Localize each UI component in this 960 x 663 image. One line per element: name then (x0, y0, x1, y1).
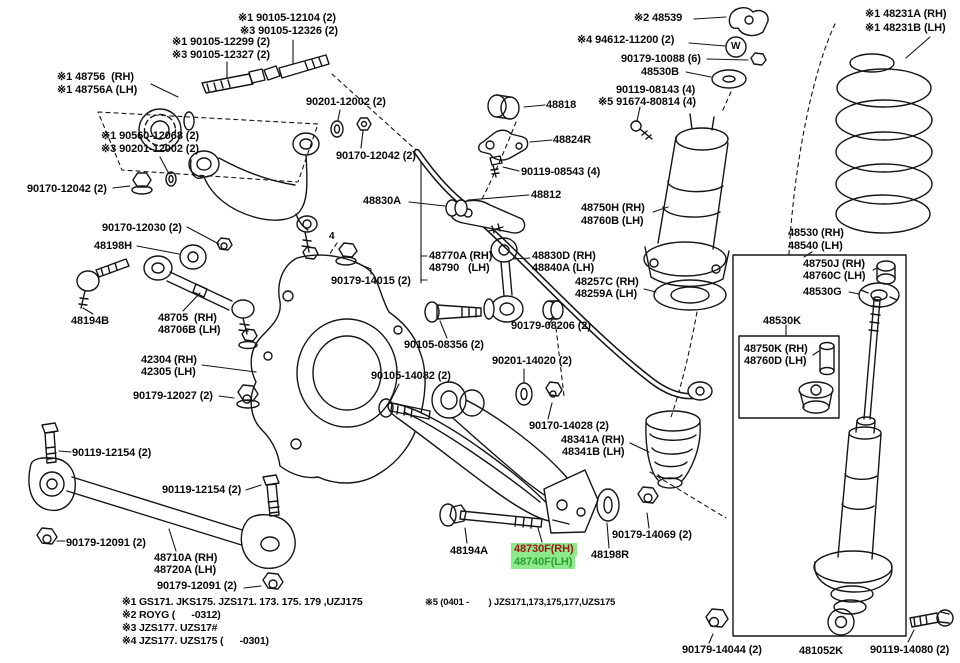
label-90201-12002-top[interactable]: 90201-12002 (2) (306, 96, 386, 108)
label-48720a-lh[interactable]: 48720A (LH) (154, 564, 216, 576)
label-48705-rh[interactable]: 48705 (RH) (158, 312, 217, 324)
label-48812[interactable]: 48812 (531, 189, 561, 201)
stabilizer-bushing-bracket-48818-48824r (479, 95, 552, 177)
note-4: ※4 JZS177. UZS175 ( -0301) (122, 636, 269, 648)
label-94612-11200[interactable]: ※4 94612-11200 (2) (577, 34, 674, 46)
note-2: ※2 ROYG ( -0312) (122, 610, 221, 622)
label-48756a-lh[interactable]: ※1 48756A (LH) (57, 84, 137, 96)
mark-w: W (731, 41, 740, 52)
tie-rod-end-48194b (77, 259, 129, 314)
label-48830a[interactable]: 48830A (363, 195, 401, 207)
label-42305-lh[interactable]: 42305 (LH) (141, 366, 196, 378)
label-48760c-lh[interactable]: 48760C (LH) (803, 270, 865, 282)
label-90201-12002-left[interactable]: ※3 90201-12002 (2) (101, 143, 199, 155)
label-48198r[interactable]: 48198R (591, 549, 629, 561)
strut-assembly-48750h (644, 114, 729, 310)
label-90105-12104[interactable]: ※1 90105-12104 (2) (238, 12, 336, 24)
label-90560-12068[interactable]: ※1 90560-12068 (2) (101, 130, 199, 142)
label-48756-rh[interactable]: ※1 48756 (RH) (57, 71, 134, 83)
label-48194a[interactable]: 48194A (450, 545, 488, 557)
label-48750j-rh[interactable]: 48750J (RH) (803, 258, 865, 270)
label-90179-12091-b[interactable]: 90179-12091 (2) (157, 580, 237, 592)
label-48341b-lh[interactable]: 48341B (LH) (562, 446, 624, 458)
mark-4: 4 (329, 231, 334, 242)
label-90179-10088[interactable]: 90179-10088 (6) (621, 53, 701, 65)
label-42304-rh[interactable]: 42304 (RH) (141, 354, 197, 366)
label-48198h[interactable]: 48198H (94, 240, 132, 252)
label-48770a-rh[interactable]: 48770A (RH) (429, 250, 492, 262)
label-90119-12154-a[interactable]: 90119-12154 (2) (72, 447, 151, 459)
label-90179-12027[interactable]: 90179-12027 (2) (133, 390, 213, 402)
coil-spring-48231 (836, 37, 932, 233)
label-90119-12154-b[interactable]: 90119-12154 (2) (162, 484, 241, 496)
label-48750k-rh[interactable]: 48750K (RH) (744, 343, 808, 355)
label-48530g[interactable]: 48530G (803, 286, 842, 298)
label-90179-14069[interactable]: 90179-14069 (2) (612, 529, 692, 541)
label-48830d-rh[interactable]: 48830D (RH) (532, 250, 596, 262)
label-48259a-lh[interactable]: 48259A (LH) (575, 288, 637, 300)
label-90170-12042-center[interactable]: 90170-12042 (2) (336, 150, 416, 162)
shock-kit-parts (799, 261, 899, 413)
label-48760b-lh[interactable]: 48760B (LH) (581, 215, 643, 227)
shock-absorber (814, 297, 892, 635)
label-90119-08143[interactable]: 90119-08143 (4) (616, 84, 695, 96)
bolt-90105-08356 (425, 302, 481, 338)
label-48790-lh[interactable]: 48790 (LH) (429, 262, 490, 274)
label-48706b-lh[interactable]: 48706B (LH) (158, 324, 220, 336)
diagram-line-art (0, 0, 960, 663)
label-90170-14028[interactable]: 90170-14028 (2) (529, 420, 609, 432)
label-90119-14080[interactable]: 90119-14080 (2) (870, 644, 949, 656)
label-48530b[interactable]: 48530B (641, 66, 679, 78)
label-48818[interactable]: 48818 (546, 99, 576, 111)
note-3: ※3 JZS177. UZS17# (122, 623, 217, 635)
lower-control-arm-48730f (379, 382, 598, 543)
label-90105-12327[interactable]: ※3 90105-12327 (2) (172, 49, 270, 61)
label-48740f-lh[interactable]: 48740F(LH) (511, 556, 575, 569)
label-48530k[interactable]: 48530K (763, 315, 801, 327)
label-48750h-rh[interactable]: 48750H (RH) (581, 202, 645, 214)
retainers-90201-14020 (516, 369, 562, 419)
note-5: ※5 (0401 - ) JZS171,173,175,177,UZS175 (425, 598, 615, 608)
label-48710a-rh[interactable]: 48710A (RH) (154, 552, 217, 564)
label-90119-08543[interactable]: 90119-08543 (4) (521, 166, 600, 178)
label-48194b[interactable]: 48194B (71, 315, 109, 327)
label-48341a-rh[interactable]: 48341A (RH) (561, 434, 624, 446)
label-90179-08206[interactable]: 90179-08206 (2) (511, 320, 591, 332)
label-90170-12042-left[interactable]: 90170-12042 (2) (27, 183, 107, 195)
label-90179-14044[interactable]: 90179-14044 (2) (682, 644, 762, 656)
label-90179-14015[interactable]: 90179-14015 (2) (331, 275, 411, 287)
label-48760d-lh[interactable]: 48760D (LH) (744, 355, 806, 367)
label-48257c-rh[interactable]: 48257C (RH) (575, 276, 639, 288)
label-48231a-rh[interactable]: ※1 48231A (RH) (865, 8, 946, 20)
note-1: ※1 GS171. JKS175. JZS171. 173. 175. 179 … (122, 597, 362, 609)
bottom-hardware (706, 609, 953, 643)
label-90105-12299[interactable]: ※1 90105-12299 (2) (172, 36, 270, 48)
label-48530-rh[interactable]: 48530 (RH) (788, 227, 844, 239)
suspension-parts-diagram: ※1 90105-12104 (2)※3 90105-12326 (2)※1 9… (0, 0, 960, 663)
label-48539[interactable]: ※2 48539 (634, 12, 682, 24)
upper-control-arm (189, 133, 319, 259)
label-90105-08356[interactable]: 90105-08356 (2) (404, 339, 484, 351)
label-481052k[interactable]: 481052K (799, 645, 843, 657)
label-48824r[interactable]: 48824R (553, 134, 591, 146)
label-90105-14082[interactable]: 90105-14082 (2) (371, 370, 451, 382)
label-48730f-rh[interactable]: 48730F(RH) (511, 543, 577, 556)
label-91674-80814[interactable]: ※5 91674-80814 (4) (598, 96, 696, 108)
label-90201-14020[interactable]: 90201-14020 (2) (492, 355, 572, 367)
label-90179-12091-a[interactable]: 90179-12091 (2) (66, 537, 146, 549)
label-48231b-lh[interactable]: ※1 48231B (LH) (865, 22, 946, 34)
label-90170-12030[interactable]: 90170-12030 (2) (102, 222, 182, 234)
label-48840a-lh[interactable]: 48840A (LH) (532, 262, 594, 274)
label-48540-lh[interactable]: 48540 (LH) (788, 240, 843, 252)
bump-stop-48341a (630, 411, 700, 488)
